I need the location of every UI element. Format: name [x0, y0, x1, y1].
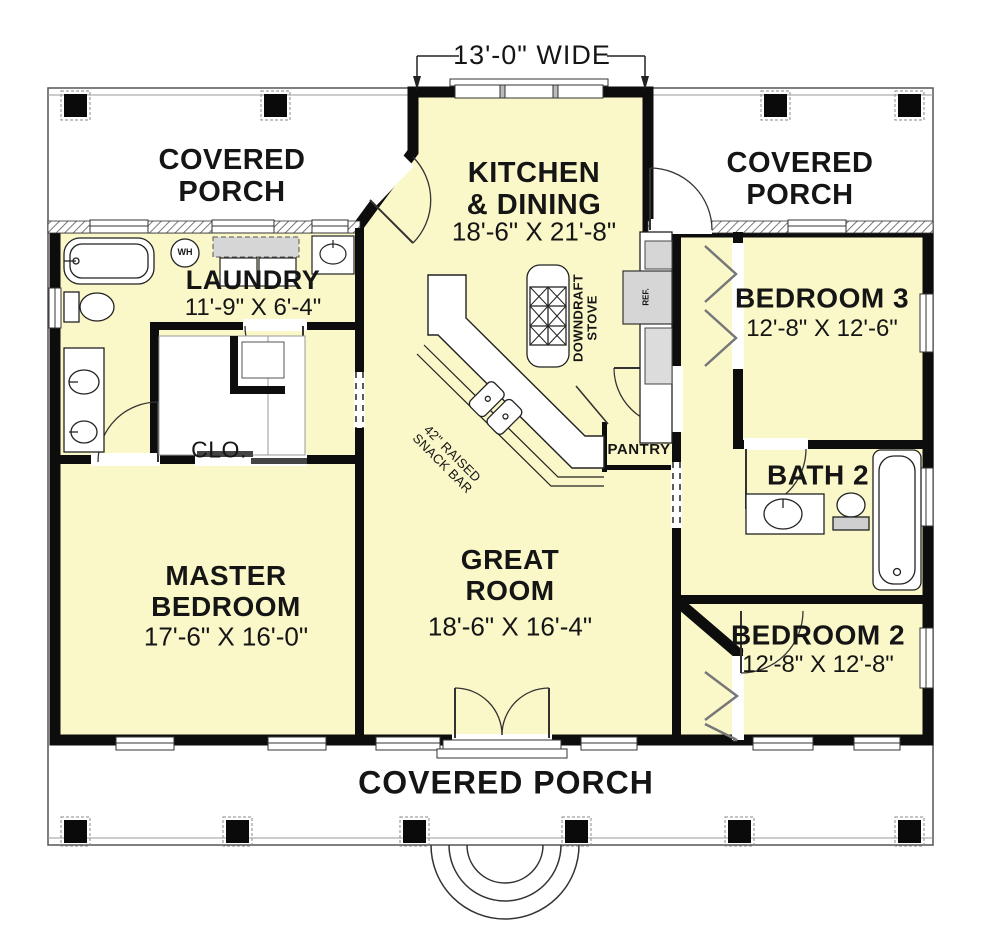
kitchen-gray-cabinet [645, 328, 672, 384]
downdraft-stove-label: DOWNDRAFT STOVE [572, 274, 601, 362]
room-label-master: MASTER BEDROOM [151, 561, 301, 623]
double-vanity-icon [64, 348, 104, 452]
room-dims-great: 18'-6" X 16'-4" [428, 613, 592, 642]
room-dims-master: 17'-6" X 16'-0" [144, 623, 308, 652]
porch-bottom-label: COVERED PORCH [358, 765, 654, 800]
room-dims-kitchen: 18'-6" X 21'-8" [452, 218, 616, 247]
room-dims-laundry: 11'-9" X 6'-4" [185, 295, 322, 321]
water-heater-label: WH [178, 248, 193, 258]
room-label-bedroom2: BEDROOM 2 [731, 621, 905, 652]
room-label-kitchen: KITCHEN & DINING [467, 158, 602, 222]
closet-label: CLO. [191, 437, 247, 462]
porch-top-left-label: COVERED PORCH [159, 145, 306, 209]
entry-thresholds [437, 740, 567, 758]
bath2-tub-icon [873, 450, 921, 590]
pantry-label: PANTRY [608, 442, 671, 459]
toilet-icon [64, 292, 114, 322]
room-label-great: GREAT ROOM [461, 545, 559, 607]
bath2-toilet-icon [833, 493, 869, 530]
room-label-laundry: LAUNDRY [186, 266, 321, 296]
porch-top-right-label: COVERED PORCH [727, 148, 874, 212]
floor-plan: 13'-0" WIDE COVERED PORCH COVERED PORCH … [0, 0, 1000, 937]
room-label-bedroom3: BEDROOM 3 [735, 284, 909, 315]
steps-icon [431, 845, 579, 919]
dishwasher-icon [645, 241, 672, 269]
bath2-vanity-icon [746, 494, 824, 534]
width-dimension-label: 13'-0" WIDE [453, 41, 611, 71]
washer-dryer-counter [213, 237, 299, 257]
refrigerator-label: REF. [643, 288, 652, 305]
room-label-bath2: BATH 2 [767, 461, 869, 492]
stove-island-icon [527, 265, 569, 367]
room-dims-bedroom3: 12'-8" X 12'-6" [746, 316, 898, 342]
bathtub-icon [64, 238, 154, 284]
closet-bypass-door [251, 458, 307, 464]
room-dims-bedroom2: 12'-8" X 12'-8" [742, 652, 894, 678]
